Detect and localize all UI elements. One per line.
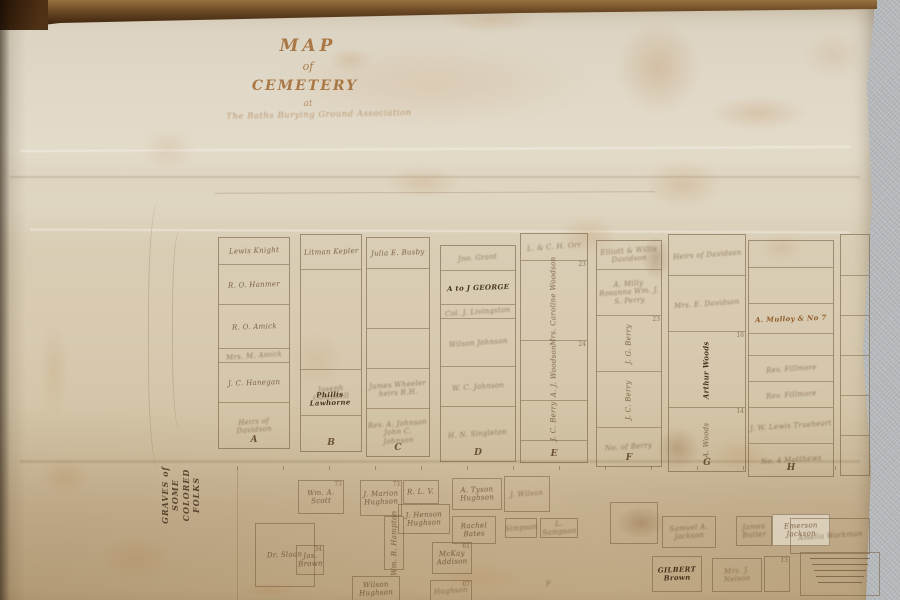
plot-owner-label: James Wheeler heirs R.H. xyxy=(366,378,429,399)
plot-owner-label: R. O. Amick xyxy=(230,322,277,332)
illegible-note-line xyxy=(816,576,864,577)
plot-owner-label: Amelia Workman xyxy=(796,529,863,542)
cemetery-plot xyxy=(301,269,361,370)
section-letter: F xyxy=(626,453,632,463)
section-letter: G xyxy=(703,458,711,468)
illegible-note-line xyxy=(812,564,868,565)
cemetery-plot: Mrs. M. Amick xyxy=(219,348,289,363)
plot-owner-label: A. Woods xyxy=(703,421,711,458)
cemetery-plot: J. Henson Hughson xyxy=(398,504,450,534)
plot-owner-label: Rachel Bates xyxy=(453,521,496,539)
cemetery-plot xyxy=(841,275,869,316)
plot-owner-label: No. of Berry xyxy=(604,442,654,454)
plot-owner-label: J. W. Lewis Trueheart xyxy=(749,419,833,433)
plot-column-B: Litman KeplerJoseph CampbellB xyxy=(300,234,362,452)
plot-owner-label: Mrs. J. Nelson xyxy=(712,565,761,585)
cemetery-plot: F xyxy=(540,576,558,592)
plot-number: 16 xyxy=(736,332,744,339)
cemetery-plot: Heirs of Davidson xyxy=(669,235,745,275)
plot-owner-label: A. Mulloy & No 7 xyxy=(754,314,828,325)
cemetery-plot: Simpson xyxy=(505,518,537,538)
plot-owner-label: J. Henson Hughson xyxy=(399,510,450,529)
plot-owner-label: Rev. Fillmore xyxy=(764,363,817,375)
plot-column-G: Heirs of DavidsonMrs. E. DavidsonArthur … xyxy=(668,234,746,472)
plot-owner-label: Julia E. Busby xyxy=(370,248,426,258)
cemetery-plot: A. Mulloy & No 7 xyxy=(749,303,833,334)
plot-owner-label: J. C. Hanegan xyxy=(227,378,282,388)
cemetery-plot: Amelia Workman xyxy=(790,518,870,554)
plot-owner-label: Simpson xyxy=(503,523,538,534)
plot-owner-label: Phillis Lawhorne xyxy=(294,389,367,408)
plot-column-H: A. Mulloy & No 7Rev. FillmoreRev. Fillmo… xyxy=(748,240,834,477)
cemetery-plot xyxy=(749,241,833,267)
plot-owner-label: McKay Addison xyxy=(433,549,472,567)
plot-owner-label: Col. J. Livingston xyxy=(444,305,512,318)
plot-owner-label: Heirs of Davidson xyxy=(218,415,289,437)
cemetery-plot xyxy=(749,333,833,356)
cemetery-plot: R. O. Amick xyxy=(219,304,289,349)
cemetery-plot xyxy=(841,235,869,275)
plot-column-D: Jno. GrantA to J GEORGECol. J. Livingsto… xyxy=(440,245,516,462)
plot-owner-label: A to J GEORGE xyxy=(446,283,511,294)
cemetery-plot: Phillis Lawhorne xyxy=(294,393,366,405)
cemetery-plot: Hughson67 xyxy=(430,580,472,600)
plot-owner-label: R. L. V. xyxy=(406,487,436,496)
cemetery-plot: J. C. Berry xyxy=(521,400,587,441)
plot-number: 34 xyxy=(314,546,322,553)
plot-number: 73 xyxy=(392,481,400,488)
cemetery-plot: Julia E. Busby xyxy=(367,238,429,268)
cemetery-plot: J. C. Berry xyxy=(597,371,661,428)
plot-number: 13 xyxy=(780,557,788,564)
plot-owner-label: Wilson Hughson xyxy=(353,580,400,598)
cemetery-plot: Rachel Bates xyxy=(452,516,496,544)
plot-owner-label: A. J. Woodson xyxy=(550,344,558,398)
cemetery-plot: Jno. Grant xyxy=(441,246,515,270)
cemetery-plot: J. G. Berry23 xyxy=(597,315,661,372)
left-edge-shadow xyxy=(0,0,10,600)
plot-number: 23 xyxy=(578,261,586,268)
cemetery-plot: Col. J. Livingston xyxy=(441,304,515,319)
cemetery-plot: Litman Kepler xyxy=(301,235,361,269)
cemetery-plot xyxy=(841,315,869,356)
cemetery-plot xyxy=(367,268,429,329)
cemetery-plot: A. Milly Rosanna Wm. J. S. Perry xyxy=(597,269,661,316)
plot-owner-label: James Butler xyxy=(736,521,771,540)
cemetery-plot: Wm. B. Hampton xyxy=(384,516,404,570)
cemetery-plot: Jas. Brown34 xyxy=(296,545,324,575)
photo-of-cemetery-map: MAP of CEMETERY at The Baths Burying Gro… xyxy=(0,0,900,600)
plot-owner-label: W. C. Johnson xyxy=(451,381,506,393)
cemetery-plot: Wilson Hughson xyxy=(352,576,400,600)
cemetery-plot: Arthur Woods16 xyxy=(669,331,745,408)
section-letter: A xyxy=(251,435,258,445)
plot-owner-label: H. N. Singleton xyxy=(447,428,509,441)
cemetery-plot: J. Wilson xyxy=(504,476,550,512)
cemetery-plot: J. C. Hanegan xyxy=(219,362,289,403)
section-letter: C xyxy=(394,443,401,453)
plot-owner-label: Mrs. Caroline Woodson xyxy=(550,255,558,346)
plot-number: 67 xyxy=(462,581,470,588)
plot-number: 61 xyxy=(462,543,470,550)
illegible-note-line xyxy=(814,570,866,571)
plot-owner-label: GILBERT Brown xyxy=(653,565,702,583)
plot-owner-label: Jno. Grant xyxy=(457,252,499,263)
cemetery-plot xyxy=(800,552,880,596)
cemetery-plot xyxy=(610,502,658,544)
plot-column-C: Julia E. BusbyJames Wheeler heirs R.H.Re… xyxy=(366,237,430,457)
cemetery-plot: Mrs. J. Nelson xyxy=(712,558,762,592)
cemetery-plot xyxy=(367,328,429,369)
plot-column-A: Lewis KnightR. O. HanmerR. O. AmickMrs. … xyxy=(218,237,290,449)
cemetery-plot: Lewis Knight xyxy=(219,238,289,264)
plot-owner-label: Arthur Woods xyxy=(703,340,711,400)
plot-owner-label: Wm. B. Hampton xyxy=(390,509,398,576)
plot-number: 73 xyxy=(334,481,342,488)
plot-owner-label: Wilson Johnson xyxy=(447,337,508,350)
section-letter: H xyxy=(787,463,796,473)
plot-owner-label: A. Milly Rosanna Wm. J. S. Perry xyxy=(596,278,662,308)
plot-owner-label: L. Sampson xyxy=(540,518,578,537)
cemetery-plot: R. L. V. xyxy=(403,480,439,504)
plot-column-E: L. & C. H. OrrMrs. Caroline Woodson23A. … xyxy=(520,233,588,463)
plot-owner-label: J. Marion Hughson xyxy=(361,489,402,507)
cemetery-plot: A to J GEORGE xyxy=(441,270,515,305)
plot-owner-label: A. Tyson Hughson xyxy=(453,485,502,503)
section-letter: D xyxy=(474,448,482,458)
plot-owner-label: R. O. Hanmer xyxy=(227,280,281,290)
plot-owner-label: L. & C. H. Orr xyxy=(526,241,583,253)
illegible-note-line xyxy=(818,582,862,583)
cemetery-plot: A. Tyson Hughson xyxy=(452,478,502,510)
cemetery-plot: R. O. Hanmer xyxy=(219,264,289,305)
cemetery-plot: 13 xyxy=(764,556,790,592)
cemetery-plot: L. Sampson xyxy=(540,518,578,538)
plot-owner-label: Elliott & Willis Davidson xyxy=(596,244,661,265)
cemetery-plot: GILBERT Brown xyxy=(652,556,702,592)
plot-owner-label: Wm. A. Scott xyxy=(299,488,344,506)
cemetery-plot xyxy=(841,355,869,396)
cemetery-plot: Elliott & Willis Davidson xyxy=(597,241,661,269)
plot-column-F: Elliott & Willis DavidsonA. Milly Rosann… xyxy=(596,240,662,467)
plot-owner-label: J. C. Berry xyxy=(550,400,558,442)
cemetery-plot: Rev. Fillmore xyxy=(749,355,833,382)
plot-owner-label: Jas. Brown xyxy=(296,551,323,569)
section-letter: E xyxy=(551,449,558,459)
cemetery-plot: James Butler xyxy=(736,516,772,546)
cemetery-plot: James Wheeler heirs R.H. xyxy=(367,368,429,409)
cemetery-plot: Mrs. E. Davidson xyxy=(669,275,745,332)
plot-owner-label: Rev. Fillmore xyxy=(764,389,817,401)
plot-owner-label: Lewis Knight xyxy=(228,246,280,256)
cemetery-plot: A. J. Woodson24 xyxy=(521,340,587,401)
cemetery-plot: McKay Addison61 xyxy=(432,542,472,574)
cemetery-plot: Wm. A. Scott73 xyxy=(298,480,344,514)
plot-owner-label: Mrs. E. Davidson xyxy=(673,297,741,310)
cemetery-plot xyxy=(749,267,833,304)
cemetery-plot: W. C. Johnson xyxy=(441,366,515,407)
plot-grid: Lewis KnightR. O. HanmerR. O. AmickMrs. … xyxy=(0,0,900,600)
plot-owner-label: Mrs. M. Amick xyxy=(225,350,284,362)
section-letter: B xyxy=(327,438,335,448)
plot-owner-label: F xyxy=(545,580,553,589)
cemetery-plot: Rev. Fillmore xyxy=(749,381,833,408)
cemetery-plot: Wilson Johnson xyxy=(441,318,515,367)
plot-owner-label: Samuel A. Jackson xyxy=(662,522,715,542)
plot-number: 24 xyxy=(578,341,586,348)
plot-owner-label: J. G. Berry xyxy=(625,323,633,365)
cemetery-plot xyxy=(841,395,869,436)
plot-number: 23 xyxy=(652,316,660,323)
plot-owner-label: J. C. Berry xyxy=(625,379,633,421)
cemetery-plot: Samuel A. Jackson xyxy=(662,516,716,548)
illegible-note-line xyxy=(810,558,870,559)
cemetery-plot: J. W. Lewis Trueheart xyxy=(749,407,833,444)
cemetery-plot xyxy=(841,435,869,476)
plot-owner-label: Heirs of Davidson xyxy=(672,248,743,261)
plot-number: 14 xyxy=(736,408,744,415)
plot-owner-label: Litman Kepler xyxy=(303,247,360,257)
cemetery-plot: Mrs. Caroline Woodson23 xyxy=(521,260,587,341)
plot-column xyxy=(840,234,870,476)
plot-owner-label: J. Wilson xyxy=(509,489,545,500)
